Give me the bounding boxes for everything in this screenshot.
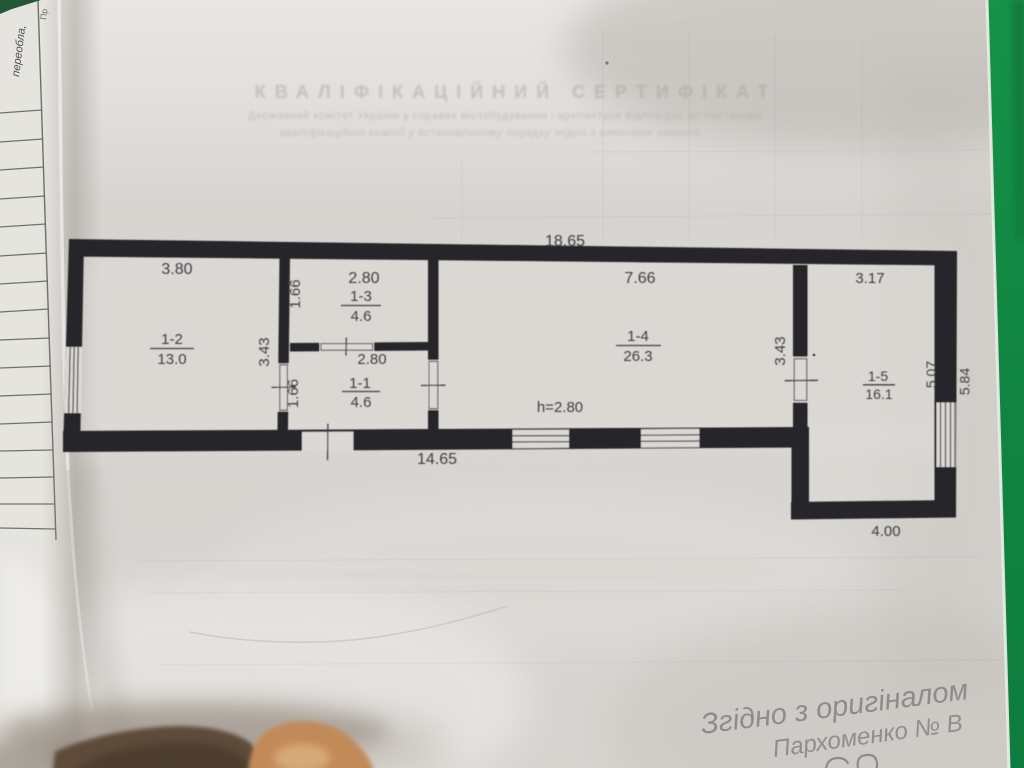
- svg-text:3.43: 3.43: [256, 337, 273, 366]
- svg-text:7.66: 7.66: [624, 270, 655, 287]
- svg-text:16.1: 16.1: [865, 386, 892, 402]
- svg-text:1-4: 1-4: [627, 328, 649, 345]
- svg-text:1.66: 1.66: [287, 279, 304, 308]
- svg-text:4.00: 4.00: [871, 523, 900, 540]
- svg-text:5.84: 5.84: [957, 368, 973, 395]
- svg-text:1-3: 1-3: [350, 288, 372, 305]
- svg-text:4.6: 4.6: [351, 394, 372, 411]
- svg-text:26.3: 26.3: [623, 348, 652, 365]
- svg-text:1-1: 1-1: [349, 375, 371, 392]
- svg-text:13.0: 13.0: [157, 351, 186, 368]
- svg-text:18.65: 18.65: [545, 233, 585, 250]
- svg-text:1-2: 1-2: [161, 331, 183, 348]
- svg-text:2.80: 2.80: [348, 270, 379, 287]
- svg-text:5.07: 5.07: [923, 361, 939, 388]
- svg-text:2.80: 2.80: [357, 351, 386, 368]
- svg-text:КВАЛІФІКАЦІЙНИЙ СЕРТИФІКАТ: КВАЛІФІКАЦІЙНИЙ СЕРТИФІКАТ: [255, 81, 777, 102]
- svg-text:3.17: 3.17: [855, 270, 884, 287]
- svg-text:Державний комітет України у сп: Державний комітет України у справах міст…: [248, 110, 762, 122]
- svg-text:кваліфікаційної комісії у вста: кваліфікаційної комісії у встановленому …: [280, 127, 700, 139]
- svg-text:3.80: 3.80: [161, 261, 192, 278]
- svg-text:14.65: 14.65: [417, 451, 457, 468]
- svg-text:1.66: 1.66: [285, 379, 302, 408]
- svg-text:1-5: 1-5: [868, 368, 888, 384]
- svg-text:3.43: 3.43: [772, 336, 789, 365]
- svg-text:4.6: 4.6: [351, 308, 372, 325]
- svg-text:h=2.80: h=2.80: [537, 399, 583, 416]
